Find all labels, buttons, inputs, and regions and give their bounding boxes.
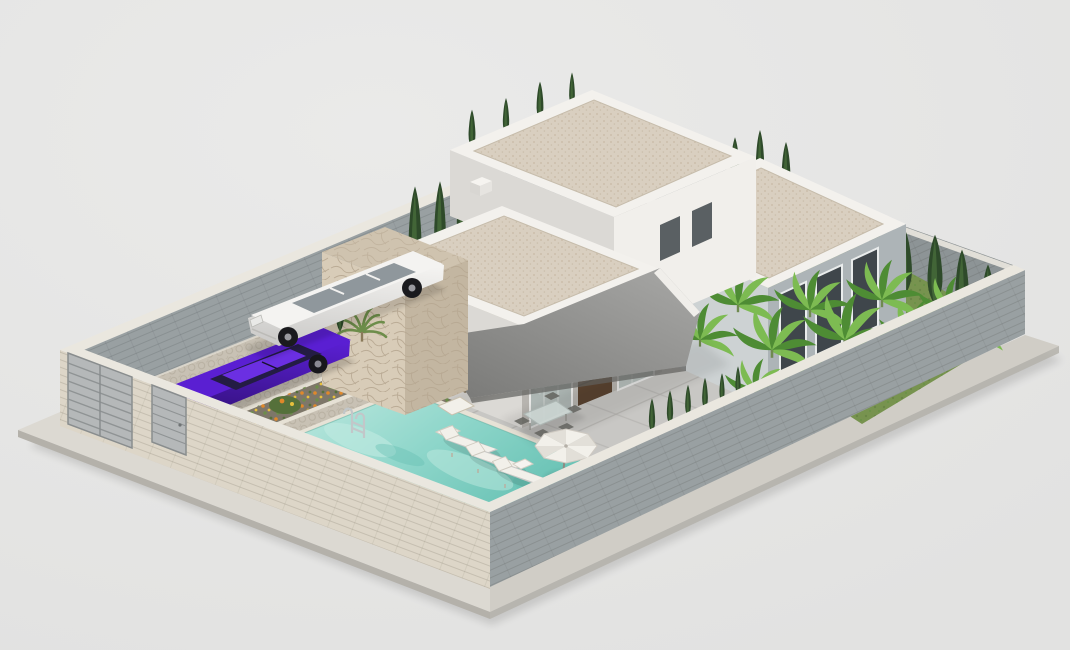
villa-render [0,0,1070,650]
render-canvas [0,0,1070,650]
pedestrian-door [152,385,186,455]
